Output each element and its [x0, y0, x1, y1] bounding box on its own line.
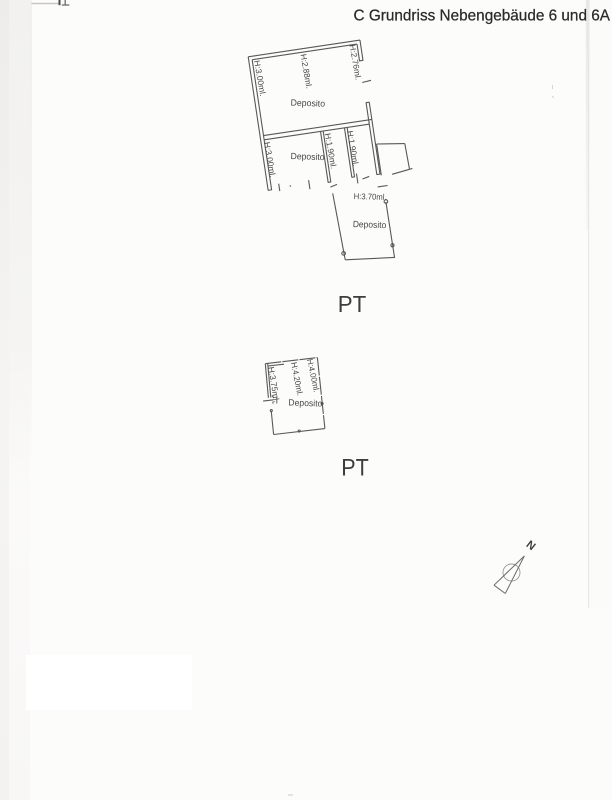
svg-text:H:3.70ml.: H:3.70ml. [354, 191, 387, 202]
svg-text:PT: PT [341, 455, 369, 482]
svg-text:Deposito: Deposito [353, 219, 387, 230]
svg-text:Deposito: Deposito [288, 397, 322, 408]
svg-text:Deposito: Deposito [290, 98, 325, 109]
svg-text:Deposito: Deposito [290, 151, 324, 162]
svg-text:C Grundriss Nebengebäude 6 und: C Grundriss Nebengebäude 6 und 6A [354, 8, 611, 25]
svg-text:PT: PT [338, 291, 367, 317]
